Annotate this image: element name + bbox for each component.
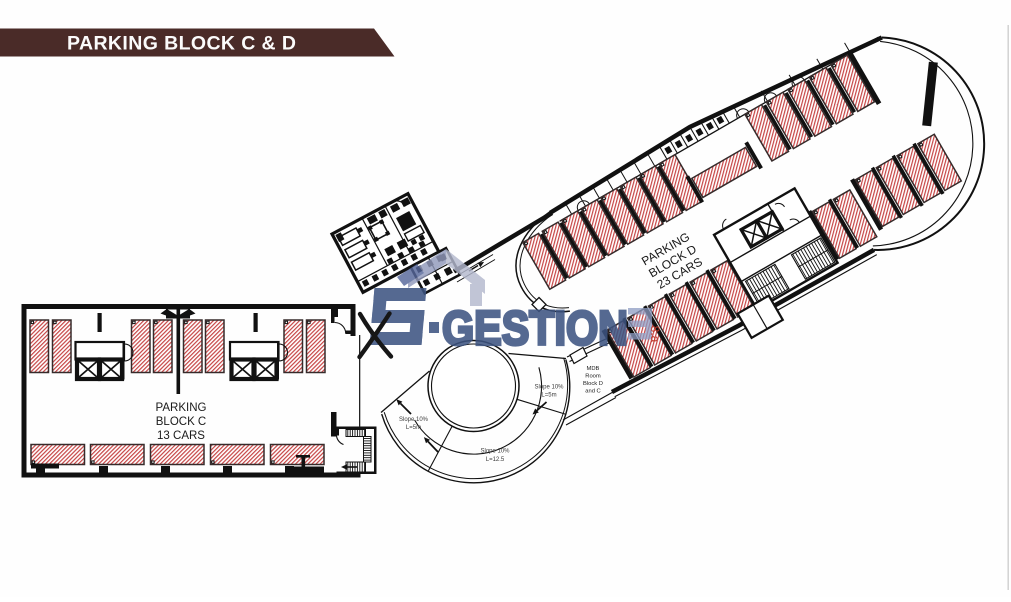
svg-text:and C: and C — [585, 389, 600, 395]
svg-text:13 CARS: 13 CARS — [157, 430, 205, 442]
svg-text:GESTION: GESTION — [442, 303, 628, 356]
svg-text:Block D: Block D — [583, 381, 603, 387]
svg-text:PARKING BLOCK C & D: PARKING BLOCK C & D — [67, 33, 296, 55]
svg-text:8.a: 8.a — [648, 326, 662, 343]
svg-text:PARKING: PARKING — [156, 402, 207, 414]
svg-text:BLOCK C: BLOCK C — [156, 416, 207, 428]
svg-text:Room: Room — [585, 374, 601, 380]
svg-text:MDB: MDB — [587, 366, 600, 372]
svg-text:Slope 10%: Slope 10% — [399, 417, 429, 423]
svg-text:L=12.5: L=12.5 — [486, 457, 505, 463]
svg-text:L=5m: L=5m — [541, 393, 556, 399]
svg-text:Slope 10%: Slope 10% — [534, 385, 564, 391]
svg-text:L=5m: L=5m — [406, 425, 421, 431]
svg-text:Slope 10%: Slope 10% — [480, 449, 510, 455]
